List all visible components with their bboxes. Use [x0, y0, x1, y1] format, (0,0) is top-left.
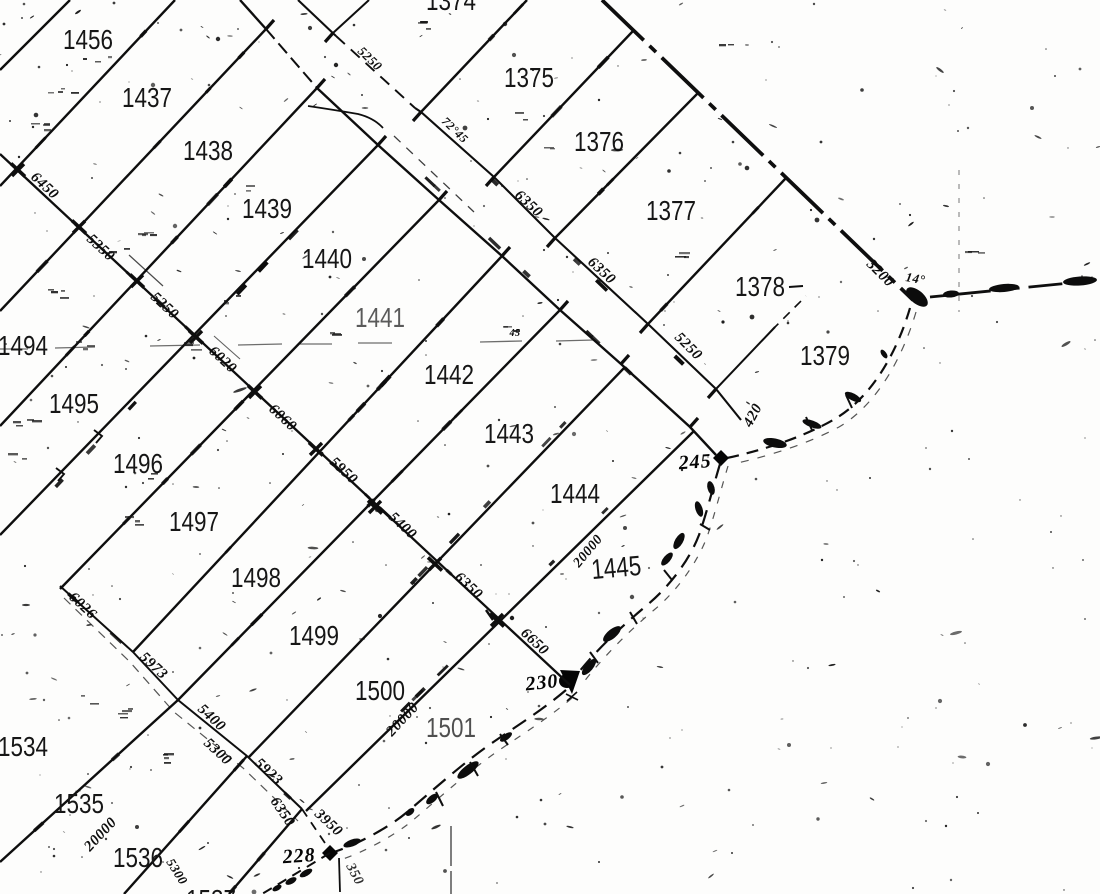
svg-text:1445: 1445 — [590, 550, 643, 585]
svg-text:1443: 1443 — [484, 418, 534, 449]
svg-text:1498: 1498 — [231, 562, 281, 593]
svg-text:1378: 1378 — [735, 271, 785, 302]
svg-text:1456: 1456 — [63, 24, 113, 55]
svg-text:1440: 1440 — [302, 243, 352, 274]
svg-text:1376: 1376 — [574, 126, 624, 157]
svg-text:1499: 1499 — [289, 620, 339, 651]
svg-text:45: 45 — [509, 328, 521, 339]
svg-text:1441: 1441 — [355, 302, 405, 333]
svg-text:1536: 1536 — [113, 842, 163, 873]
svg-text:1537: 1537 — [186, 884, 236, 894]
svg-text:1535: 1535 — [54, 788, 104, 819]
svg-text:1500: 1500 — [355, 675, 405, 706]
svg-text:1374: 1374 — [426, 0, 476, 16]
svg-text:1439: 1439 — [242, 193, 292, 224]
svg-text:1375: 1375 — [504, 62, 554, 93]
svg-text:1437: 1437 — [122, 82, 172, 113]
svg-text:1377: 1377 — [646, 195, 696, 226]
svg-text:1534: 1534 — [0, 731, 48, 762]
svg-text:1497: 1497 — [169, 506, 219, 537]
svg-text:1442: 1442 — [424, 359, 474, 390]
svg-text:1379: 1379 — [800, 340, 850, 371]
svg-text:1444: 1444 — [550, 478, 600, 509]
svg-text:1501: 1501 — [426, 712, 476, 743]
svg-text:1495: 1495 — [49, 388, 99, 419]
svg-text:1438: 1438 — [183, 135, 233, 166]
svg-text:1494: 1494 — [0, 330, 48, 361]
